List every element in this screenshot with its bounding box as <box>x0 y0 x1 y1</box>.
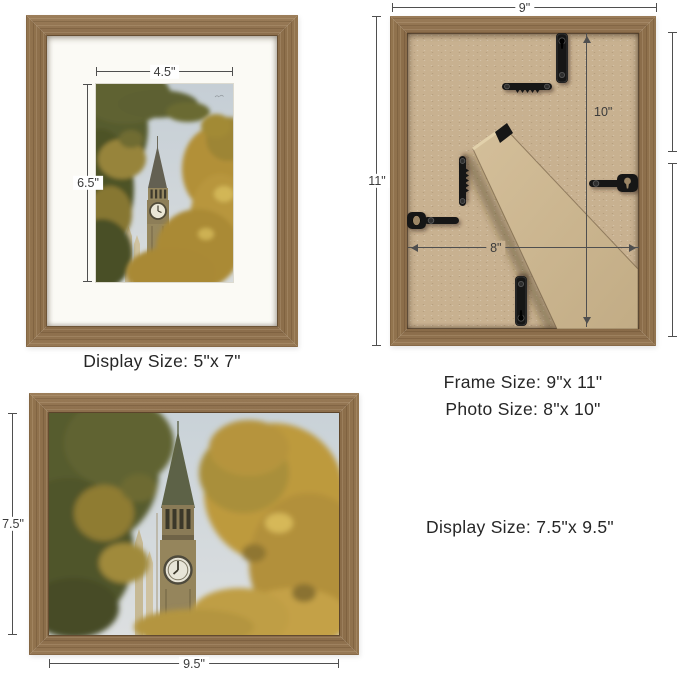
caption-back-sizes: Frame Size: 9"x 11" Photo Size: 8"x 10" <box>390 369 656 423</box>
frame-rail-bottom <box>390 329 656 346</box>
keyhole-hanger-bottom <box>515 276 527 326</box>
dimension-line-right-upper <box>672 32 673 152</box>
dimension-label: 11" <box>364 174 389 188</box>
product-dimension-diagram: 4.5" 6.5" Display Size: 5"x 7" <box>0 0 679 675</box>
frame-rail-right <box>339 393 359 655</box>
turn-button-latch-right <box>589 174 638 192</box>
frame-rail-top <box>390 16 656 33</box>
frame-rail-left <box>390 16 407 346</box>
big-ben-landscape-illustration <box>49 413 339 635</box>
frame-rail-bottom <box>26 326 298 347</box>
caption-display-size-7.5x9.5: Display Size: 7.5"x 9.5" <box>390 514 650 541</box>
frame-rail-right <box>277 15 298 347</box>
dimension-label: 4.5" <box>150 65 180 79</box>
dimension-line-display-width: 9.5" <box>49 663 339 664</box>
back-hardware-layer <box>407 33 639 329</box>
caption-frame-size: Frame Size: 9"x 11" <box>390 369 656 396</box>
dimension-line-display-height: 7.5" <box>12 413 13 635</box>
dimension-line-frame-height: 11" <box>376 16 377 346</box>
dimension-line-right-lower <box>672 163 673 337</box>
keyhole-hanger-top <box>556 33 568 83</box>
dimension-label: 6.5" <box>73 176 103 190</box>
frame-rail-left <box>26 15 47 347</box>
dimension-line-opening-width: 4.5" <box>96 71 233 72</box>
dimension-line-photo-height: 10" <box>586 33 587 327</box>
frame-rail-left <box>29 393 49 655</box>
dimension-label: 7.5" <box>0 517 28 531</box>
dimension-line-frame-width: 9" <box>392 7 657 8</box>
frame-rail-top <box>29 393 359 413</box>
frame-rail-top <box>26 15 298 36</box>
framed-photo-front-7.5x9.5 <box>29 393 359 655</box>
frame-rail-right <box>639 16 656 346</box>
photo-big-ben-landscape <box>49 413 339 635</box>
caption-photo-size: Photo Size: 8"x 10" <box>390 396 656 423</box>
turn-button-latch-left <box>407 212 459 229</box>
dimension-label: 10" <box>594 105 612 119</box>
dimension-line-photo-width: 8" <box>408 247 639 248</box>
frame-back-view-9x11 <box>390 16 656 346</box>
caption-display-size-5x7: Display Size: 5"x 7" <box>26 348 298 375</box>
dimension-label: 9" <box>515 1 534 15</box>
big-ben-portrait-illustration <box>96 84 233 282</box>
frame-rail-bottom <box>29 635 359 655</box>
back-hardware-illustration <box>407 33 639 329</box>
dimension-label: 9.5" <box>179 657 209 671</box>
photo-big-ben-portrait <box>96 84 233 282</box>
dimension-line-opening-height: 6.5" <box>87 84 88 282</box>
dimension-label: 8" <box>486 241 505 255</box>
sawtooth-hanger-horizontal <box>502 83 552 93</box>
